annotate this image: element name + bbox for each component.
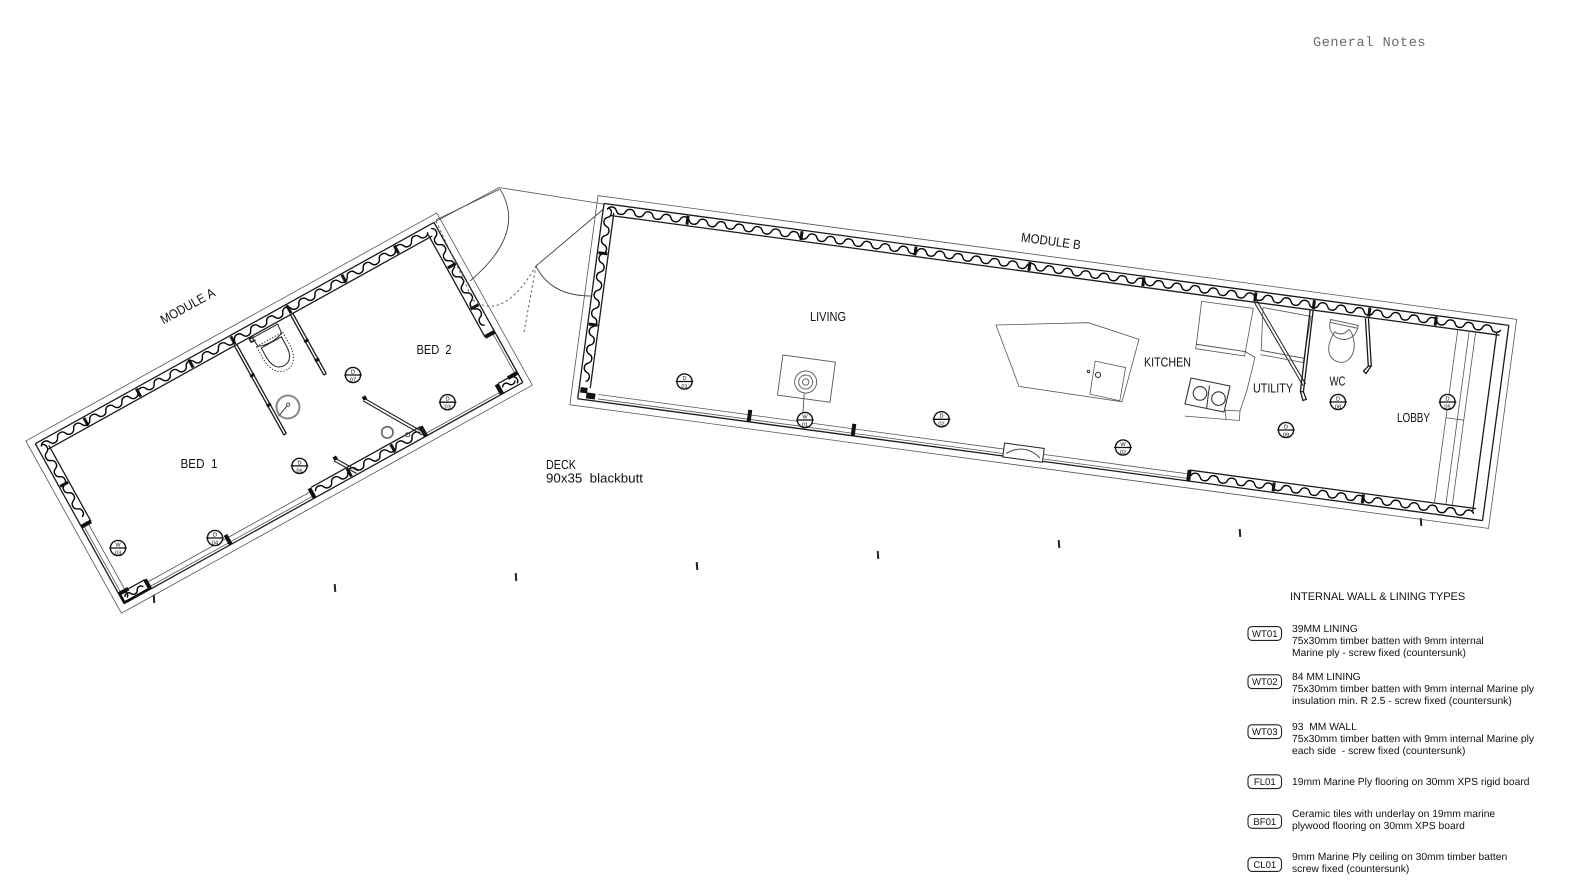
- svg-text:04: 04: [212, 540, 218, 546]
- svg-text:CL01: CL01: [1253, 860, 1276, 871]
- svg-text:01: 01: [681, 384, 687, 390]
- svg-text:9mm Marine Ply ceiling on 30mm: 9mm Marine Ply ceiling on 30mm timber ba…: [1292, 852, 1507, 863]
- svg-text:FL01: FL01: [1254, 777, 1276, 788]
- svg-text:WT02: WT02: [1252, 677, 1278, 688]
- svg-text:19mm Marine Ply flooring on 30: 19mm Marine Ply flooring on 30mm XPS rig…: [1292, 777, 1530, 788]
- svg-text:90x35 blackbutt: 90x35 blackbutt: [546, 471, 643, 486]
- svg-text:LIVING: LIVING: [810, 309, 846, 324]
- svg-text:09: 09: [1283, 432, 1289, 438]
- svg-text:Marine ply - screw fixed (coun: Marine ply - screw fixed (countersunk): [1292, 648, 1466, 659]
- svg-text:BED 2: BED 2: [417, 342, 452, 357]
- svg-text:W: W: [802, 414, 808, 420]
- svg-text:D: D: [351, 369, 355, 375]
- svg-text:INTERNAL WALL & LINING TYPES: INTERNAL WALL & LINING TYPES: [1290, 591, 1465, 603]
- svg-text:plywood flooring on 30mm XPS b: plywood flooring on 30mm XPS board: [1292, 821, 1465, 832]
- svg-text:03: 03: [444, 405, 450, 411]
- svg-text:BED 1: BED 1: [181, 456, 218, 471]
- svg-text:02: 02: [1120, 450, 1126, 456]
- svg-text:D: D: [446, 397, 450, 403]
- svg-text:D: D: [297, 460, 301, 466]
- svg-text:WT03: WT03: [1252, 727, 1278, 738]
- svg-text:UTILITY: UTILITY: [1253, 381, 1293, 396]
- svg-text:02: 02: [938, 422, 944, 428]
- svg-text:each side - screw fixed (coun: each side - screw fixed (countersunk): [1292, 746, 1465, 757]
- svg-text:BF01: BF01: [1253, 817, 1276, 828]
- svg-text:General Notes: General Notes: [1313, 36, 1426, 51]
- svg-text:39MM LINING: 39MM LINING: [1292, 624, 1358, 635]
- svg-text:Ceramic tiles with underlay on: Ceramic tiles with underlay on 19mm mari…: [1292, 809, 1495, 820]
- svg-text:screw fixed (countersunk): screw fixed (countersunk): [1292, 864, 1409, 875]
- svg-text:WT01: WT01: [1252, 629, 1278, 640]
- svg-text:75x30mm timber batten with 9mm: 75x30mm timber batten with 9mm internal: [1292, 636, 1484, 647]
- svg-text:05: 05: [1444, 404, 1450, 410]
- svg-text:insulation min. R 2.5 - screw: insulation min. R 2.5 - screw fixed (cou…: [1292, 696, 1512, 707]
- svg-text:WC: WC: [1330, 374, 1346, 389]
- svg-text:D: D: [1445, 396, 1449, 402]
- svg-text:LOBBY: LOBBY: [1397, 410, 1430, 425]
- svg-text:03: 03: [115, 550, 121, 556]
- svg-text:84 MM LINING: 84 MM LINING: [1292, 672, 1361, 683]
- svg-text:75x30mm timber batten with 9mm: 75x30mm timber batten with 9mm internal …: [1292, 684, 1535, 695]
- svg-text:D: D: [213, 532, 217, 538]
- svg-text:D: D: [1284, 424, 1288, 430]
- svg-text:75x30mm timber batten with 9mm: 75x30mm timber batten with 9mm internal …: [1292, 734, 1535, 745]
- svg-text:D: D: [939, 414, 943, 420]
- svg-text:93 MM WALL: 93 MM WALL: [1292, 722, 1357, 733]
- svg-text:01: 01: [802, 422, 808, 428]
- svg-text:D: D: [682, 376, 686, 382]
- svg-text:KITCHEN: KITCHEN: [1144, 355, 1191, 370]
- svg-text:W: W: [115, 542, 121, 548]
- svg-text:W: W: [1120, 442, 1126, 448]
- svg-text:D: D: [1336, 396, 1340, 402]
- svg-text:06: 06: [296, 468, 302, 474]
- svg-text:08: 08: [1335, 404, 1341, 410]
- svg-text:07: 07: [350, 377, 356, 383]
